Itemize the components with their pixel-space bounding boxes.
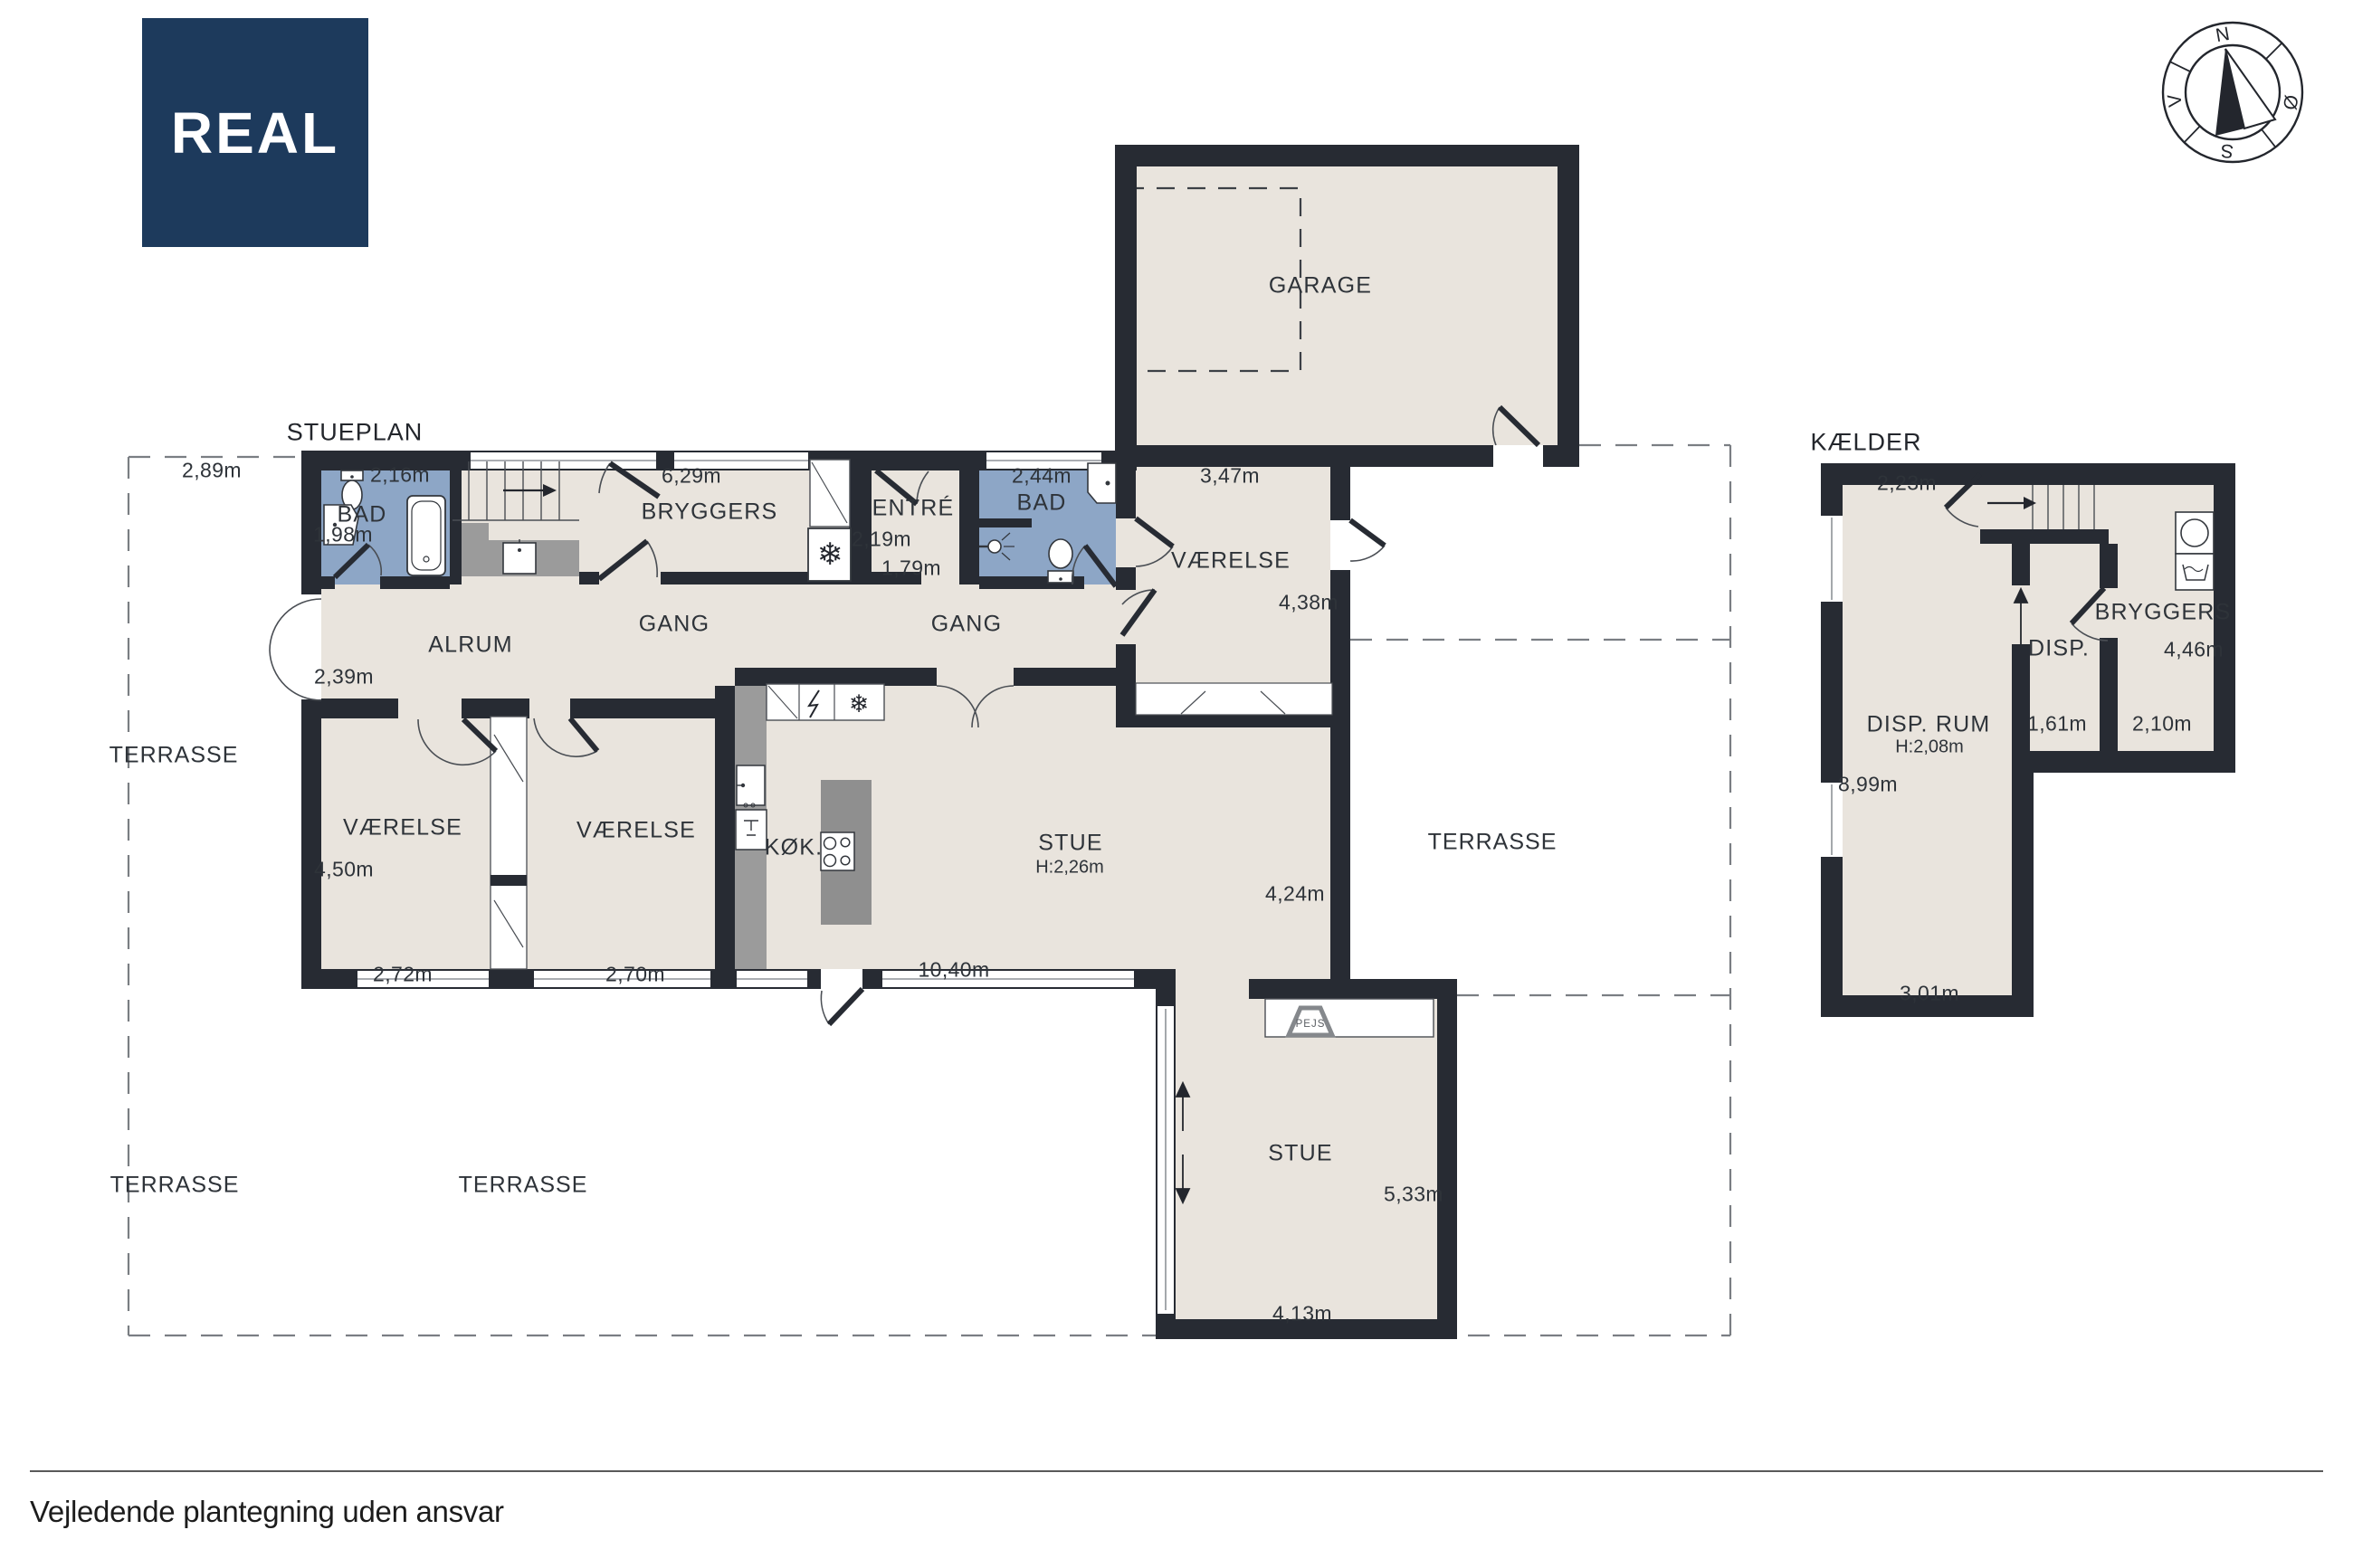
fridge-snowflake-icon: ❄ xyxy=(849,690,870,718)
measure-entre-w: 2,19m xyxy=(852,527,911,552)
measure-disp-rum-height: H:2,08m xyxy=(1895,737,1964,758)
fireplace-label: PEJS xyxy=(1296,1019,1326,1030)
bryggers-fixtures: ❄ xyxy=(808,460,851,581)
fireplace-pejs xyxy=(1265,999,1434,1037)
utility-sink-icon xyxy=(503,539,536,574)
measure-vaerelse-sw-h: 4,50m xyxy=(314,858,374,882)
measure-vaerelse-ne-h: 4,38m xyxy=(1279,591,1338,615)
measure-bad2-w: 2,44m xyxy=(1012,464,1072,489)
real-logo: REAL xyxy=(142,18,368,247)
real-logo-text: REAL xyxy=(171,100,339,166)
measure-kaelder-stairs-w: 2,23m xyxy=(1877,471,1937,496)
measure-vaerelse-ne-w: 3,47m xyxy=(1200,464,1260,489)
measure-stue-w: 10,40m xyxy=(918,958,989,983)
floorplan-page: ❄ ❄ xyxy=(0,0,2353,1568)
terrasse-label-sw: TERRASSE xyxy=(110,1173,240,1199)
measure-entre-h: 1,79m xyxy=(881,556,941,581)
kaelder-fixtures xyxy=(2176,512,2214,590)
room-label-vaerelse-ne: VÆRELSE xyxy=(1171,548,1291,575)
kitchen-sink-icon xyxy=(737,765,765,805)
room-label-bad2: BAD xyxy=(1016,490,1066,517)
measure-disp-rum-h: 8,99m xyxy=(1838,773,1898,797)
laundry-sink-icon xyxy=(2176,554,2214,590)
room-label-entre: ENTRÉ xyxy=(872,496,955,522)
room-label-gang-right: GANG xyxy=(931,612,1002,638)
measure-stue2-h: 5,33m xyxy=(1384,1183,1443,1207)
tall-cabinet-icon xyxy=(810,460,850,527)
stove-icon xyxy=(821,832,854,870)
room-label-vaerelse-s: VÆRELSE xyxy=(576,818,696,844)
compass-south-label: S xyxy=(2220,138,2234,161)
measure-terrace-west: 2,89m xyxy=(182,459,242,483)
freezer-icon: ❄ xyxy=(808,528,851,581)
room-label-bryggers: BRYGGERS xyxy=(642,499,778,526)
room-label-disp: DISP. xyxy=(2028,636,2090,662)
svg-text:❄: ❄ xyxy=(817,537,843,573)
terrasse-label-nw: TERRASSE xyxy=(110,743,239,769)
measure-kaelder-bryggers-h: 4,46m xyxy=(2164,638,2224,662)
terrasse-label-east: TERRASSE xyxy=(1428,830,1558,856)
kitchen-wall-counter: ❄ xyxy=(767,684,884,720)
terrasse-label-s: TERRASSE xyxy=(459,1173,588,1199)
bathtub-icon xyxy=(407,496,445,575)
measure-bad1-w: 2,16m xyxy=(370,463,430,488)
room-label-kaelder-bryggers: BRYGGERS xyxy=(2095,600,2232,626)
room-label-disp-rum: DISP. RUM xyxy=(1867,712,1991,738)
measure-stue-upper-height: H:2,26m xyxy=(1035,858,1104,879)
dishwasher-icon xyxy=(736,803,767,850)
measure-disp-rum-w: 3,01m xyxy=(1900,982,1959,1006)
footer-disclaimer: Vejledende plantegning uden ansvar xyxy=(30,1495,504,1529)
room-label-stue-upper: STUE xyxy=(1038,831,1102,857)
room-label-alrum: ALRUM xyxy=(428,632,513,659)
measure-alrum-h: 2,39m xyxy=(314,665,374,689)
measure-disp-w: 1,61m xyxy=(2027,712,2087,736)
stueplan-title: STUEPLAN xyxy=(287,419,424,447)
kaelder-title: KÆLDER xyxy=(1810,429,1921,457)
measure-vaerelse-s-w: 2,70m xyxy=(605,963,665,987)
vaerelse-ne-wardrobe xyxy=(1136,683,1332,715)
measure-bryggers-w: 6,29m xyxy=(662,464,721,489)
room-label-gang-left: GANG xyxy=(639,612,710,638)
measure-kaelder-bryggers-w: 2,10m xyxy=(2132,712,2192,736)
measure-stue-h: 4,24m xyxy=(1265,882,1325,907)
measure-vaerelse-sw-w: 2,72m xyxy=(373,963,433,987)
room-label-stue-lower: STUE xyxy=(1268,1141,1332,1167)
room-label-garage: GARAGE xyxy=(1269,273,1372,299)
toilet-icon xyxy=(1048,539,1073,583)
washing-machine-icon xyxy=(2176,512,2214,554)
sink-icon xyxy=(1088,463,1116,503)
measure-bad1-h: 1,98m xyxy=(313,523,373,547)
wardrobe-column xyxy=(491,717,527,969)
footer-divider xyxy=(30,1470,2323,1472)
room-label-vaerelse-sw: VÆRELSE xyxy=(343,815,462,841)
measure-stue2-w: 4,13m xyxy=(1272,1302,1332,1326)
room-label-koek: KØK. xyxy=(765,835,824,861)
